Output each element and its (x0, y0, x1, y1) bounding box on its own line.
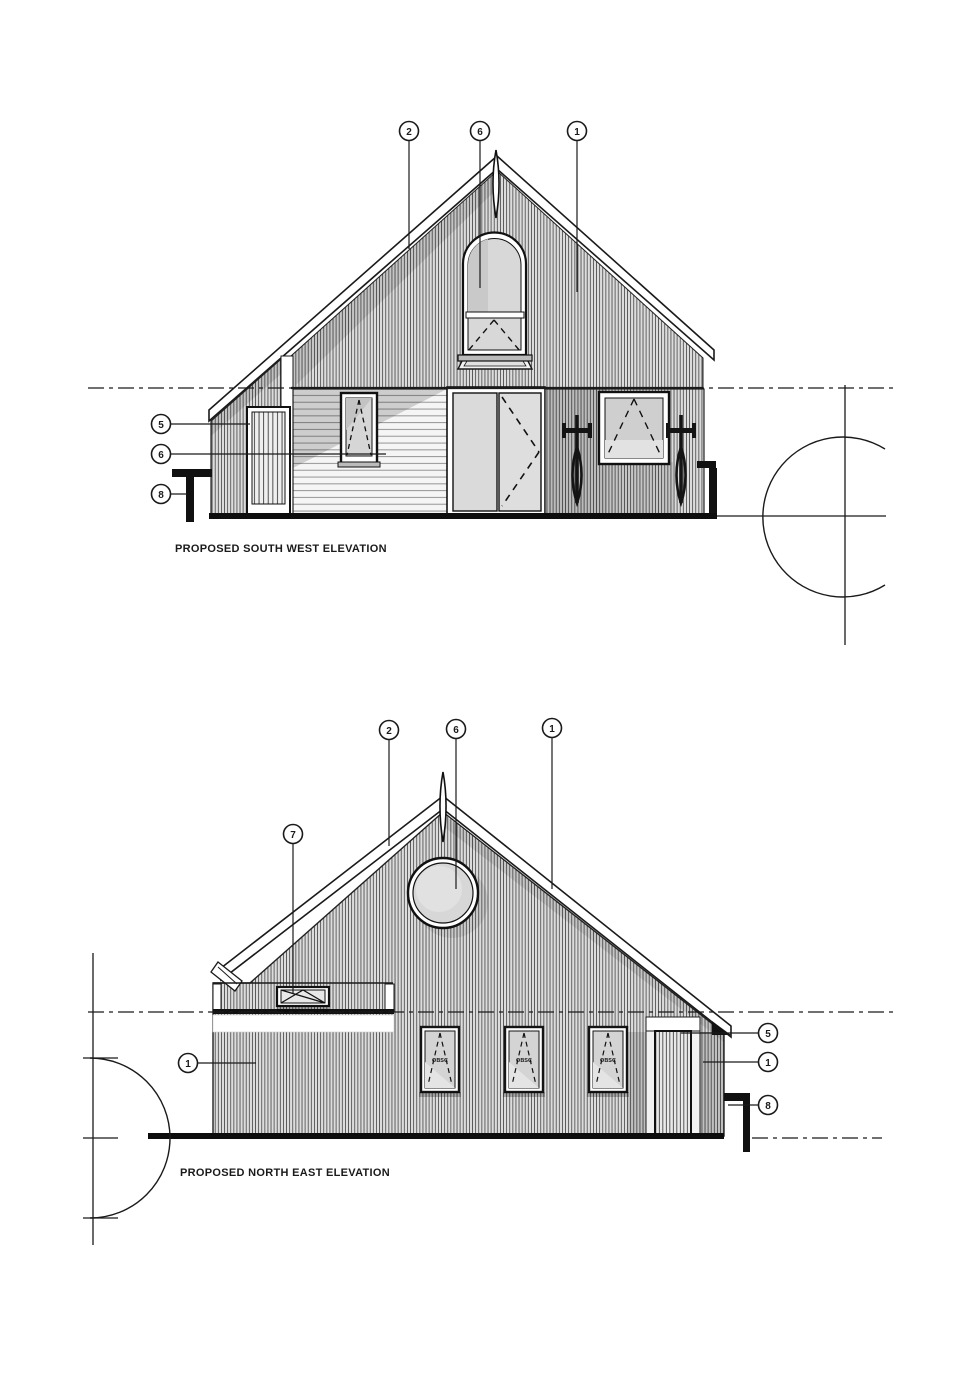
svg-text:8: 8 (765, 1101, 771, 1112)
drawing-sheet: 2 6 1 5 6 8 PROPOSED SOUTH WEST ELEVATIO… (0, 0, 980, 1386)
ne-marker-right-wall: 1 (759, 1053, 778, 1072)
svg-text:1: 1 (765, 1058, 771, 1069)
ne-window-1: OBSC (419, 1027, 461, 1097)
svg-text:1: 1 (574, 127, 580, 138)
sw-downpipe-left (172, 469, 212, 522)
sw-arched-window (458, 233, 532, 361)
svg-text:1: 1 (549, 724, 555, 735)
ne-marker-eaves: 5 (759, 1024, 778, 1043)
sw-arched-window-sill (458, 355, 532, 361)
svg-text:5: 5 (765, 1029, 771, 1040)
sw-marker-door: 5 (152, 415, 171, 434)
sw-marker-arched-window: 6 (471, 122, 490, 141)
sw-narrow-window-sill (338, 462, 380, 467)
ne-marker-downpipe: 8 (759, 1096, 778, 1115)
svg-text:5: 5 (158, 420, 164, 431)
ne-window-3: OBSC (587, 1027, 629, 1097)
ne-marker-roof: 2 (380, 721, 399, 740)
svg-text:OBSC: OBSC (432, 1058, 448, 1064)
svg-text:1: 1 (185, 1059, 191, 1070)
ne-window-2: OBSC (503, 1027, 545, 1097)
svg-text:6: 6 (158, 450, 164, 461)
ne-ridge-finial-icon (440, 772, 446, 842)
svg-text:2: 2 (406, 127, 412, 138)
sw-marker-horizontal-cladding: 6 (152, 445, 171, 464)
ne-marker-cladding: 1 (543, 719, 562, 738)
svg-text:OBSC: OBSC (600, 1058, 616, 1064)
ne-downpipe (724, 1093, 750, 1152)
svg-text:7: 7 (290, 830, 296, 841)
sw-side-door (247, 407, 290, 516)
sw-narrow-window (338, 393, 380, 467)
sw-marker-downpipe: 8 (152, 485, 171, 504)
ne-entrance-door (646, 1017, 700, 1136)
ne-marker-left-wall: 1 (179, 1054, 198, 1073)
ne-louvre-vent (277, 987, 329, 1012)
sw-marker-cladding: 1 (568, 122, 587, 141)
sw-right-wall-shadow2 (607, 462, 673, 516)
sw-ground-line (209, 513, 717, 519)
ne-ground-line (148, 1133, 724, 1139)
sw-ridge-finial-icon (493, 150, 499, 218)
southwest-elevation: 2 6 1 5 6 8 PROPOSED SOUTH WEST ELEVATIO… (88, 122, 893, 646)
ne-title: PROPOSED NORTH EAST ELEVATION (180, 1167, 390, 1179)
svg-text:6: 6 (453, 725, 459, 736)
elevations-drawing: 2 6 1 5 6 8 PROPOSED SOUTH WEST ELEVATIO… (0, 0, 980, 1386)
ne-marker-round-window: 6 (447, 720, 466, 739)
svg-text:6: 6 (477, 127, 483, 138)
ne-setting-out-ticks (83, 1058, 118, 1218)
sw-glazed-doors (447, 387, 545, 516)
sw-setting-out-circle (763, 437, 885, 597)
northeast-elevation: OBSC OBSC OBSC (83, 719, 895, 1246)
ne-marker-louvre: 7 (284, 825, 303, 844)
svg-text:8: 8 (158, 490, 164, 501)
sw-title: PROPOSED SOUTH WEST ELEVATION (175, 543, 387, 555)
sw-large-window (599, 392, 669, 464)
svg-text:2: 2 (386, 726, 392, 737)
svg-text:OBSC: OBSC (516, 1058, 532, 1064)
sw-marker-roof: 2 (400, 122, 419, 141)
